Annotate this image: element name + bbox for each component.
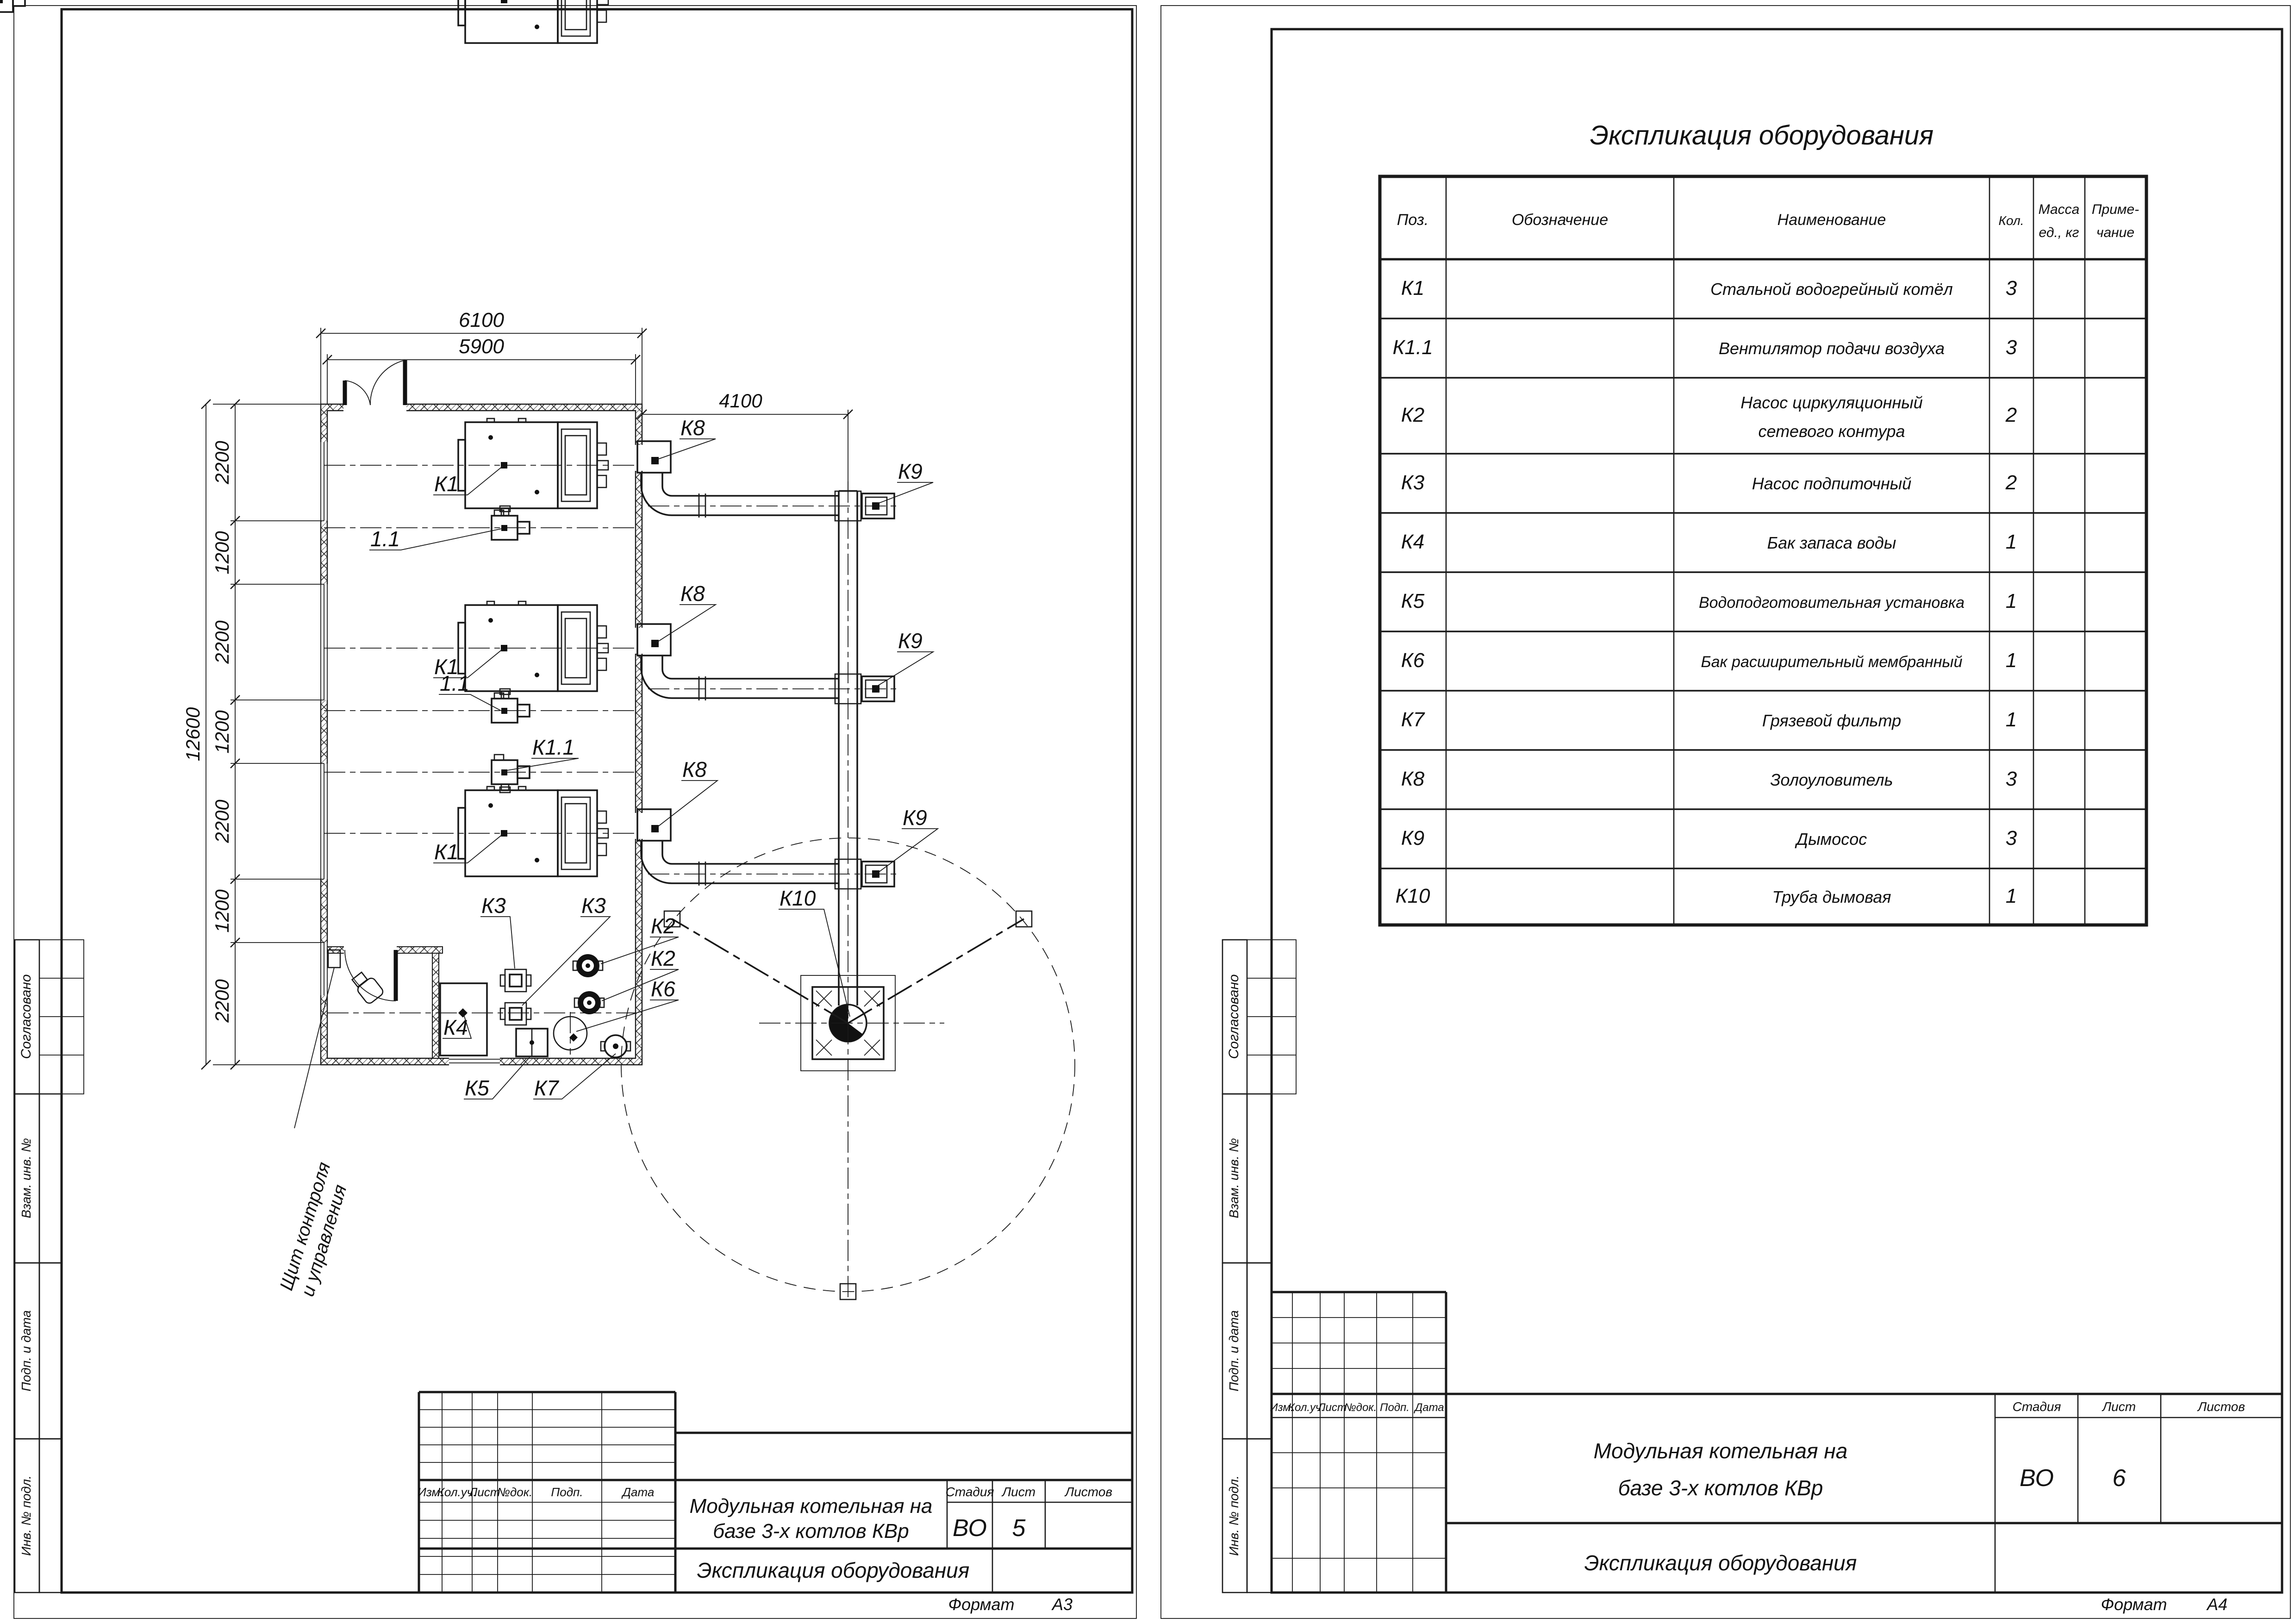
k7-label: К7 bbox=[534, 1076, 559, 1100]
dim-4100: 4100 bbox=[719, 390, 762, 412]
k4-label: К4 bbox=[443, 1015, 468, 1039]
project-name-left-2: базе 3-х котлов КВр bbox=[713, 1520, 909, 1543]
equipment-table: Поз. Обозначение Наименование Кол. Масса… bbox=[1380, 176, 2146, 925]
approved-label: Согласовано bbox=[19, 974, 34, 1059]
row1-name: Стальной водогрейный котёл bbox=[1710, 280, 1953, 299]
row6-qty: 1 bbox=[2006, 590, 2017, 612]
row5-qty: 1 bbox=[2006, 531, 2017, 553]
format-value-right: А4 bbox=[2206, 1595, 2227, 1614]
dim-5900: 5900 bbox=[459, 335, 504, 358]
right-sheet: Согласовано Взам. инв. № Подп. и дата Ин… bbox=[1161, 6, 2290, 1618]
rev-data-right: Дата bbox=[1413, 1401, 1444, 1414]
row9-qty: 3 bbox=[2006, 768, 2017, 790]
k1-label-3: К1 bbox=[434, 840, 459, 864]
rev-podp-left: Подп. bbox=[551, 1485, 583, 1499]
right-frame bbox=[1272, 29, 2282, 1593]
row4-qty: 2 bbox=[2005, 471, 2017, 494]
row9-name: Золоуловитель bbox=[1770, 770, 1893, 789]
row3-pos: К2 bbox=[1401, 404, 1424, 426]
sheets-label-right: Листов bbox=[2197, 1399, 2245, 1414]
sheet-number-right: 6 bbox=[2113, 1465, 2126, 1492]
table-row: К5 Водоподготовительная установка 1 bbox=[1401, 590, 2017, 612]
partitions bbox=[327, 946, 443, 1058]
row2-name: Вентилятор подачи воздуха bbox=[1719, 339, 1945, 358]
format-label-right: Формат bbox=[2101, 1595, 2167, 1614]
col-note-2: чание bbox=[2096, 225, 2134, 240]
row10-qty: 3 bbox=[2006, 827, 2017, 849]
fan-symbol bbox=[0, 0, 25, 12]
k2-label-1: К2 bbox=[651, 914, 675, 938]
rev-list-right: Лист bbox=[1317, 1401, 1347, 1414]
row10-pos: К9 bbox=[1401, 827, 1424, 849]
table-row: К2 Насос циркуляционный сетевого контура… bbox=[1401, 393, 2017, 441]
unit-k5 bbox=[516, 1029, 548, 1056]
project-name-left-1: Модульная котельная на bbox=[690, 1495, 933, 1518]
k9-label-3: К9 bbox=[903, 806, 927, 830]
sign-date-label-right: Подп. и дата bbox=[1227, 1310, 1241, 1391]
row9-pos: К8 bbox=[1401, 768, 1425, 790]
table-row: К1.1 Вентилятор подачи воздуха 3 bbox=[1392, 336, 2017, 359]
col-name: Наименование bbox=[1777, 211, 1886, 229]
format-label-left: Формат bbox=[948, 1595, 1015, 1614]
left-page-edge bbox=[14, 6, 1136, 1618]
rev-ndok-right: №док. bbox=[1344, 1401, 1377, 1414]
control-panel: Щит контроля и управления bbox=[276, 950, 351, 1299]
row1-pos: К1 bbox=[1401, 277, 1424, 300]
flue-row-3 bbox=[637, 809, 898, 889]
pump-k2-1 bbox=[573, 954, 603, 977]
format-value-left: А3 bbox=[1051, 1595, 1073, 1614]
table-row: К1 Стальной водогрейный котёл 3 bbox=[1401, 277, 2017, 300]
row5-name: Бак запаса воды bbox=[1767, 533, 1896, 552]
right-title-block: Изм. Кол.уч. Лист №док. Подп. Дата Модул… bbox=[1270, 1292, 2282, 1614]
drawing-svg: Согласовано Взам. инв. № Подп. и дата Ин… bbox=[0, 0, 2295, 1624]
k10-label: К10 bbox=[780, 886, 816, 910]
row11-qty: 1 bbox=[2006, 885, 2017, 907]
row11-pos: К10 bbox=[1396, 885, 1430, 907]
toilet bbox=[352, 972, 385, 1005]
row3-name2: сетевого контура bbox=[1758, 422, 1905, 441]
row10-name: Дымосос bbox=[1795, 830, 1867, 849]
rev-ndok-left: №док. bbox=[497, 1485, 533, 1499]
flue-row-1 bbox=[637, 441, 898, 521]
dim-chain-6: 1200 bbox=[211, 889, 233, 933]
dim-chain-5: 2200 bbox=[211, 800, 233, 843]
stage-label-left: Стадия bbox=[946, 1485, 994, 1499]
row4-name: Насос подпиточный bbox=[1752, 474, 1912, 493]
row8-pos: К7 bbox=[1401, 708, 1425, 731]
rev-list-left: Лист bbox=[468, 1485, 500, 1499]
callouts: К1 К1 К1 1.1 1.1 К1.1 К8 К8 К8 К9 bbox=[369, 416, 938, 1100]
table-row: К8 Золоуловитель 3 bbox=[1401, 768, 2017, 790]
row3-qty: 2 bbox=[2005, 404, 2017, 426]
k2-label-2: К2 bbox=[651, 946, 675, 970]
row7-pos: К6 bbox=[1401, 649, 1425, 672]
k3-label-2: К3 bbox=[581, 893, 606, 918]
row4-pos: К3 bbox=[1401, 471, 1425, 494]
fan-label-3: К1.1 bbox=[532, 735, 574, 759]
fan-label-1: 1.1 bbox=[370, 527, 400, 551]
inv-orig-label-right: Инв. № подл. bbox=[1227, 1475, 1241, 1556]
sheet-label-right: Лист bbox=[2102, 1399, 2136, 1414]
k8-label-1: К8 bbox=[680, 416, 705, 440]
project-name-right-1: Модульная котельная на bbox=[1594, 1439, 1848, 1463]
col-mass-2: ед., кг bbox=[2039, 225, 2079, 240]
right-margin-stamp: Согласовано Взам. инв. № Подп. и дата Ин… bbox=[1222, 940, 1296, 1593]
table-row: К6 Бак расширительный мембранный 1 bbox=[1401, 649, 2017, 672]
row1-qty: 3 bbox=[2006, 277, 2017, 300]
stage-value-right: ВО bbox=[2020, 1465, 2054, 1492]
dim-chain-1: 2200 bbox=[211, 441, 233, 485]
row2-qty: 3 bbox=[2006, 336, 2017, 359]
rev-data-left: Дата bbox=[621, 1485, 655, 1499]
project-name-right-2: базе 3-х котлов КВр bbox=[1618, 1476, 1823, 1500]
pump-k3-1 bbox=[500, 969, 531, 992]
k3-label-1: К3 bbox=[481, 893, 506, 918]
replace-inv-label: Взам. инв. № bbox=[19, 1138, 33, 1218]
doc-name-right: Экспликация оборудования bbox=[1584, 1551, 1857, 1575]
row5-pos: К4 bbox=[1401, 531, 1424, 553]
pump-k2-2 bbox=[574, 991, 604, 1014]
approved-label-right: Согласовано bbox=[1226, 974, 1241, 1059]
table-row: К10 Труба дымовая 1 bbox=[1396, 885, 2017, 907]
drawing-canvas: Согласовано Взам. инв. № Подп. и дата Ин… bbox=[0, 0, 2295, 1624]
k9-label-1: К9 bbox=[898, 459, 923, 483]
row6-name: Водоподготовительная установка bbox=[1699, 594, 1964, 612]
floor-plan: Щит контроля и управления bbox=[0, 0, 1075, 1301]
k5-label: К5 bbox=[465, 1076, 489, 1100]
dim-chain-2: 1200 bbox=[211, 531, 233, 575]
flue-row-2 bbox=[637, 624, 898, 704]
row2-pos: К1.1 bbox=[1392, 336, 1433, 359]
replace-inv-label-right: Взам. инв. № bbox=[1227, 1138, 1241, 1218]
col-note-1: Приме- bbox=[2092, 202, 2139, 217]
left-title-block: Изм. Кол.уч. Лист №док. Подп. Дата Модул… bbox=[418, 1392, 1132, 1614]
row11-name: Труба дымовая bbox=[1772, 887, 1891, 906]
right-page-edge bbox=[1161, 6, 2290, 1618]
expansion-tank-k6 bbox=[554, 1012, 587, 1055]
row7-name: Бак расширительный мембранный bbox=[1701, 653, 1963, 671]
row3-name: Насос циркуляционный bbox=[1740, 393, 1923, 412]
entrance-door bbox=[345, 360, 405, 405]
row6-pos: К5 bbox=[1401, 590, 1425, 612]
table-row: К4 Бак запаса воды 1 bbox=[1401, 531, 2017, 553]
stage-value-left: ВО bbox=[953, 1515, 987, 1542]
inv-orig-label: Инв. № подл. bbox=[19, 1475, 33, 1556]
dim-chain-4: 1200 bbox=[211, 710, 233, 754]
k8-label-3: К8 bbox=[682, 757, 707, 781]
col-pos: Поз. bbox=[1397, 211, 1428, 229]
table-title: Экспликация оборудования bbox=[1590, 120, 1933, 150]
row7-qty: 1 bbox=[2006, 649, 2017, 672]
dim-total-12600: 12600 bbox=[182, 707, 204, 761]
pump-k3-2 bbox=[500, 1003, 531, 1025]
k1-label-1: К1 bbox=[434, 472, 459, 496]
left-margin-stamp: Согласовано Взам. инв. № Подп. и дата Ин… bbox=[15, 940, 84, 1593]
dim-chain-3: 2200 bbox=[211, 620, 233, 664]
doc-name-left: Экспликация оборудования bbox=[697, 1558, 970, 1582]
k8-label-2: К8 bbox=[680, 581, 705, 606]
dim-6100: 6100 bbox=[459, 309, 504, 331]
sheet-number-left: 5 bbox=[1012, 1515, 1026, 1542]
rev-podp-right: Подп. bbox=[1380, 1401, 1409, 1414]
col-qty: Кол. bbox=[1998, 213, 2024, 228]
sheets-label-left: Листов bbox=[1064, 1485, 1112, 1499]
row8-name: Грязевой фильтр bbox=[1762, 711, 1901, 730]
table-row: К7 Грязевой фильтр 1 bbox=[1401, 708, 2017, 731]
col-designation: Обозначение bbox=[1512, 211, 1608, 229]
fan-label-2: 1.1 bbox=[440, 671, 469, 695]
left-sheet: Согласовано Взам. инв. № Подп. и дата Ин… bbox=[0, 0, 1136, 1618]
stage-label-right: Стадия bbox=[2013, 1399, 2061, 1414]
sign-date-label: Подп. и дата bbox=[19, 1310, 33, 1391]
table-row: К9 Дымосос 3 bbox=[1401, 827, 2017, 849]
sheet-label-left: Лист bbox=[1001, 1485, 1035, 1499]
table-row: К3 Насос подпиточный 2 bbox=[1401, 471, 2017, 494]
dim-chain-7: 2200 bbox=[211, 979, 233, 1023]
k6-label: К6 bbox=[651, 977, 675, 1001]
col-mass-1: Масса bbox=[2039, 202, 2080, 217]
row8-qty: 1 bbox=[2006, 708, 2017, 731]
k9-label-2: К9 bbox=[898, 629, 923, 653]
boiler-symbol bbox=[458, 0, 608, 43]
